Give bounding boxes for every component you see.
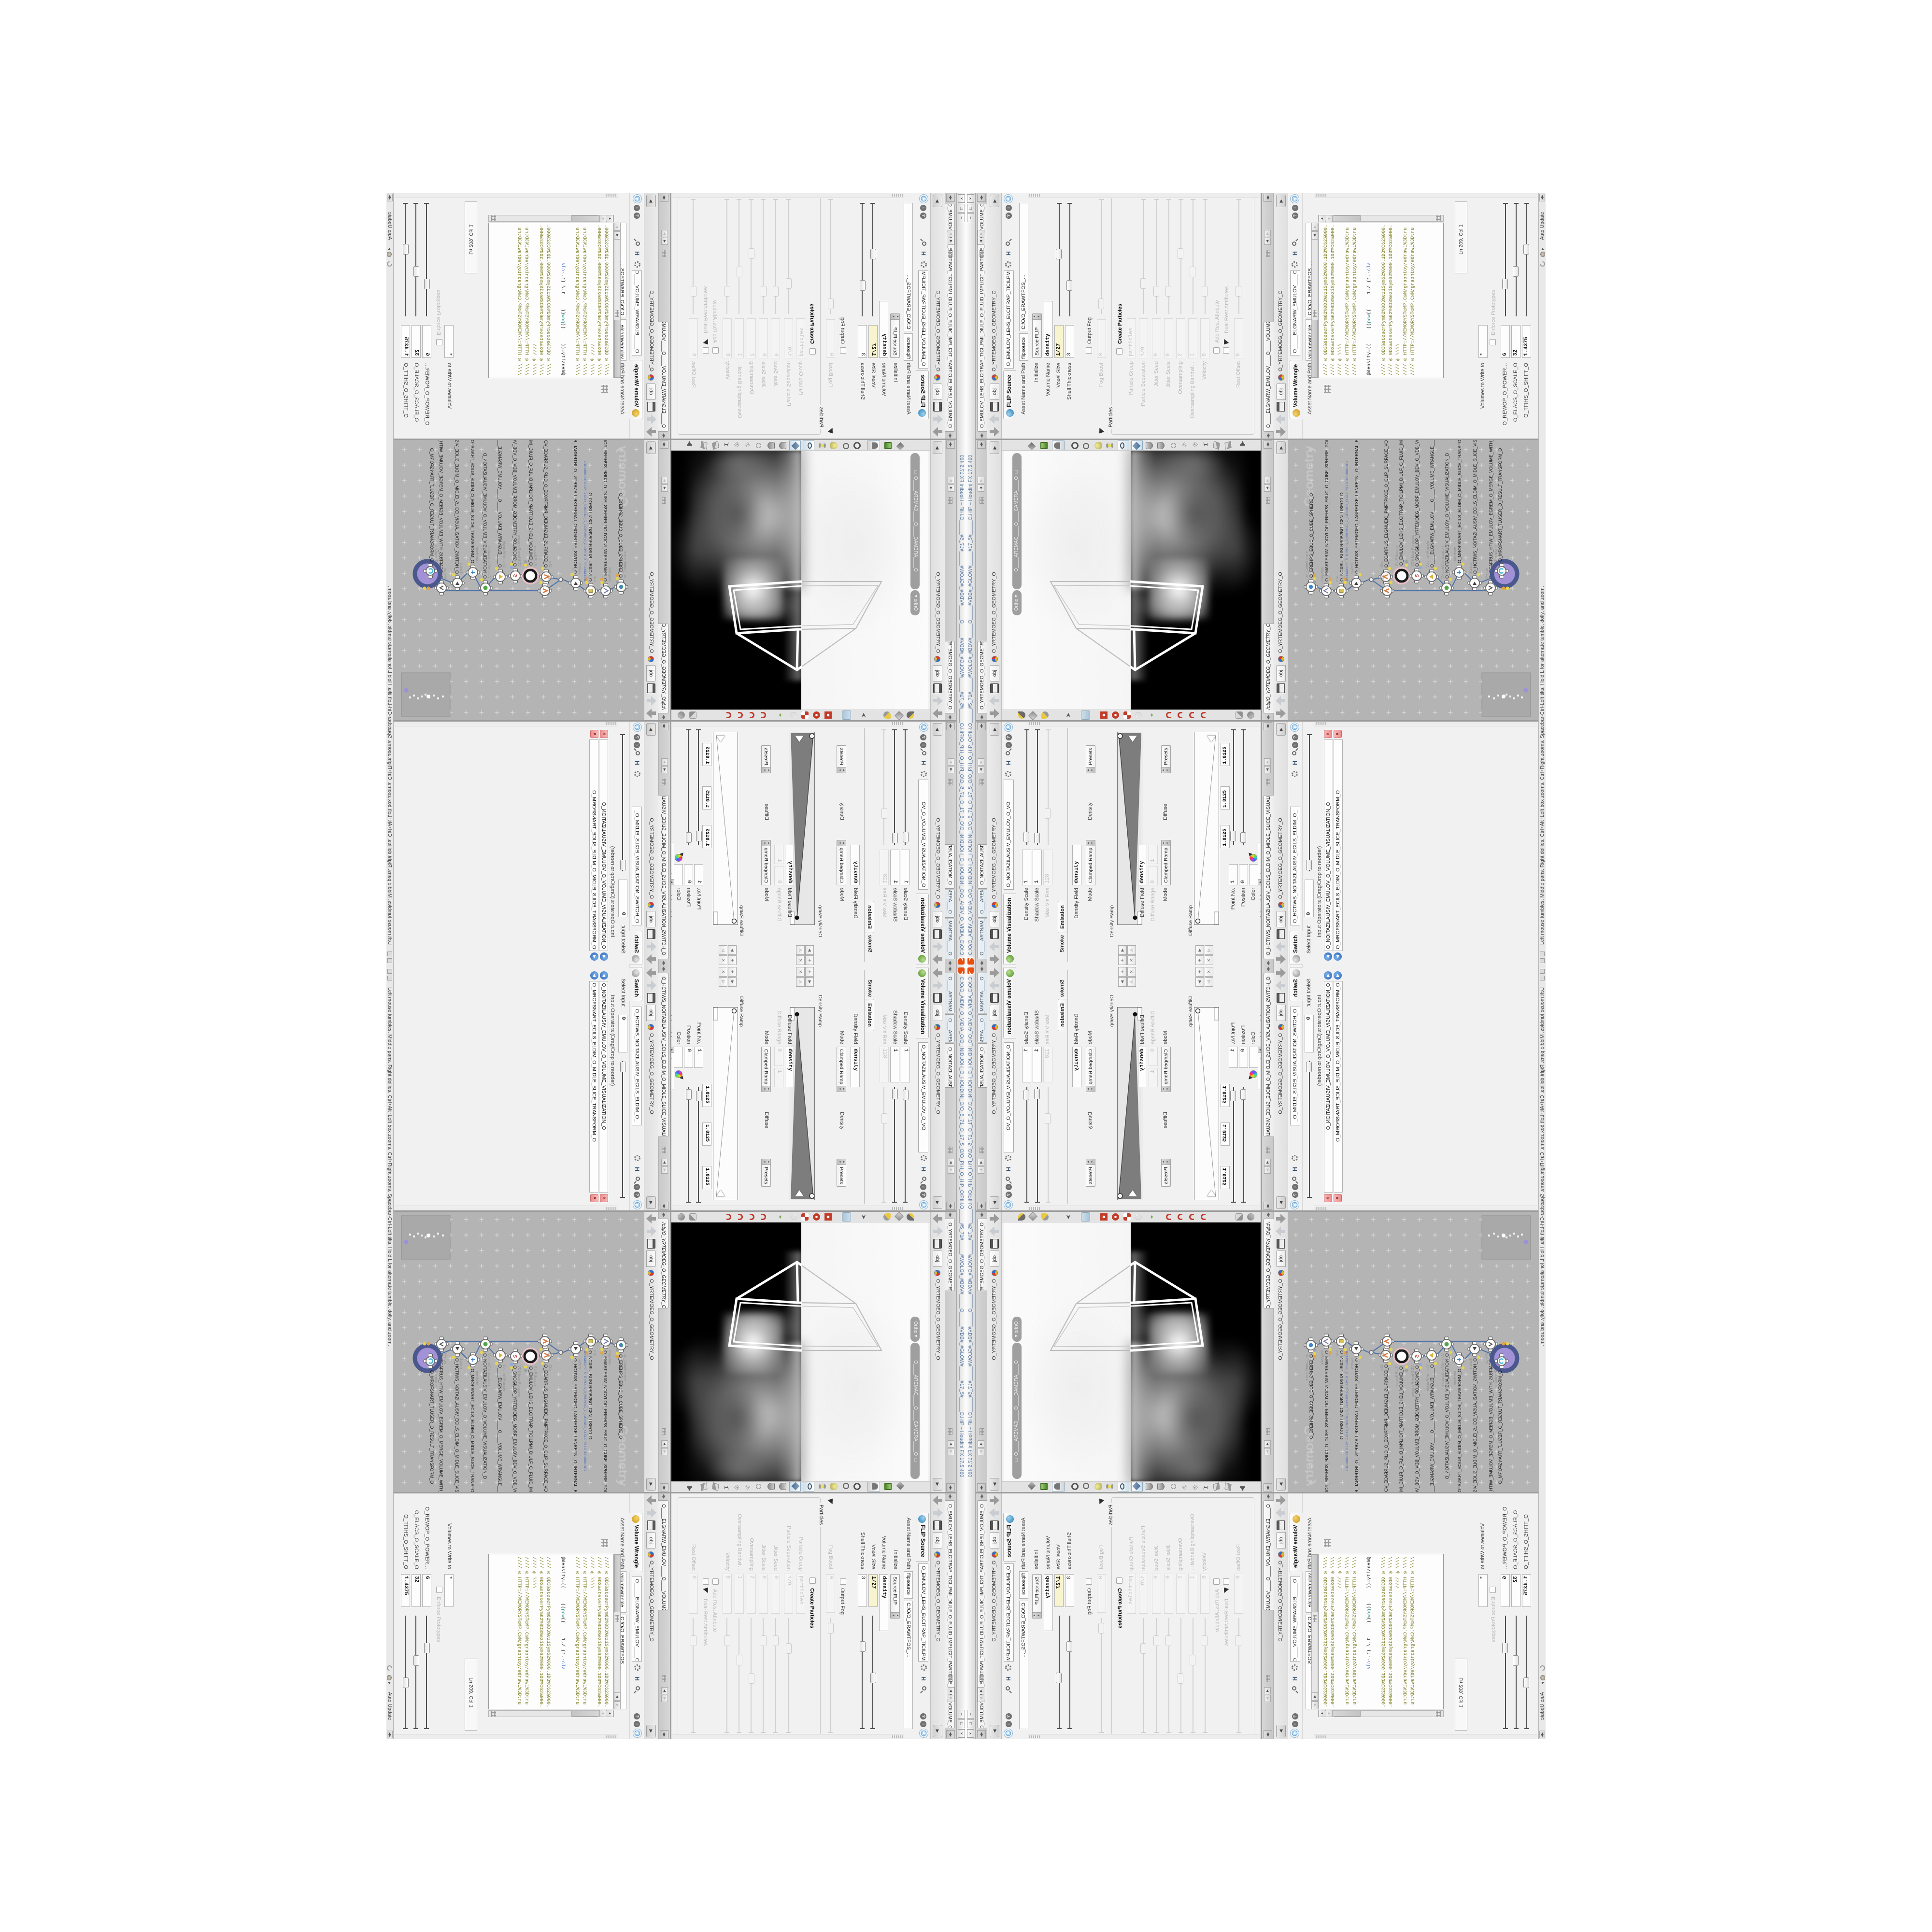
svg-text:O_MROFSNART_ECILS_ELDIM_O_MIDL: O_MROFSNART_ECILS_ELDIM_O_MIDLE_SLICE_TR… [1457, 1369, 1462, 1492]
svg-text:File: File [1335, 1350, 1339, 1356]
svg-text:O_EMARFERIW_NOGYLOP_EREHPS_EBU: O_EMARFERIW_NOGYLOP_EREHPS_EBUC_O_CUBE_S… [1324, 440, 1329, 582]
svg-text:O_HCTIWS_YRTEMOEG_LANRETXE_LAN: O_HCTIWS_YRTEMOEG_LANRETXE_LANRETNI_O_IN… [573, 440, 578, 574]
svg-text:Transform: Transform [1453, 547, 1457, 563]
svg-text:O_ECAFRUS_HTIW_EMULOV_EGREM_O_: O_ECAFRUS_HTIW_EMULOV_EGREM_O_MERGE_VOLU… [439, 440, 443, 579]
svg-text:O_SNOGILOP_YRTEMOEG_MORF_EMULO: O_SNOGILOP_YRTEMOEG_MORF_EMULOV_BDV_O_VD… [512, 1365, 517, 1492]
svg-text:O_NCXBU_BUSLRB0B2BO_G8N_USEO0_: O_NCXBU_BUSLRB0B2BO_G8N_USEO0_D [1339, 1350, 1344, 1440]
svg-text:JBO.M03.PETS.TRPOLS_0_55UM0G_O: JBO.M03.PETS.TRPOLS_0_55UM0G_O_GENUS3_O.… [1346, 1350, 1349, 1471]
svg-text:O_ECARRUS_ELGNUEIC_PMFTPKCE_O_: O_ECARRUS_ELGNUEIC_PMFTPKCE_O_CLIP_SURFA… [543, 440, 548, 568]
svg-text:O_SNOGILOP_YRTEMOEG_MORF_EMULO: O_SNOGILOP_YRTEMOEG_MORF_EMULOV_BDV_O_VD… [1415, 1365, 1420, 1492]
svg-text:VDB from Polygons: VDB from Polygons [1410, 535, 1415, 567]
svg-text:Volume Wrangle: Volume Wrangle [502, 1364, 507, 1391]
svg-text:O_ECAFRUS_HTIW_EMULOV_EGREM_O_: O_ECAFRUS_HTIW_EMULOV_EGREM_O_MERGE_VOLU… [439, 1353, 443, 1492]
svg-text:Switch: Switch [578, 563, 582, 574]
svg-text:Transform: Transform [434, 1370, 439, 1387]
svg-text:VolumeVisualization: VolumeVisualization [1440, 546, 1445, 579]
svg-text:O_MROFSNART_ECILS_ELDIM_O_MIDL: O_MROFSNART_ECILS_ELDIM_O_MIDLE_SLICE_TR… [470, 1369, 475, 1492]
svg-text:Transform: Transform [1453, 1369, 1457, 1385]
svg-text:Transform: Transform [475, 547, 479, 563]
svg-text:O_EREHPS_EBUC_O_CUBE_SPHERE_O: O_EREHPS_EBUC_O_CUBE_SPHERE_O [1309, 1354, 1314, 1439]
svg-text:O_MROFSNART_ECILS_ELDIM_O_MIDL: O_MROFSNART_ECILS_ELDIM_O_MIDLE_SLICE_TR… [1457, 440, 1462, 563]
svg-text:O_NOITAZILAUSIV_EMULOV_O_VOLUM: O_NOITAZILAUSIV_EMULOV_O_VOLUME_VISUALIZ… [1445, 1353, 1449, 1479]
svg-text:O_HCTIWS_NOITAZILAUSIV_ECILS_E: O_HCTIWS_NOITAZILAUSIV_ECILS_ELDIM_O_MID… [1473, 440, 1477, 574]
svg-text:Clip: Clip [547, 1350, 551, 1357]
svg-text:O____ELGNARW_EMULOV____O____VO: O____ELGNARW_EMULOV____O____VOLUME_WRANG… [1430, 440, 1435, 568]
svg-text:Volume Wrangle: Volume Wrangle [502, 541, 507, 568]
svg-text:VolumeVisualization: VolumeVisualization [487, 1353, 492, 1386]
svg-text:Clip: Clip [1381, 1350, 1385, 1357]
svg-text:Volume Wrangle: Volume Wrangle [1425, 1364, 1430, 1391]
svg-text:O_NOITAZILAUSIV_EMULOV_O_VOLUM: O_NOITAZILAUSIV_EMULOV_O_VOLUME_VISUALIZ… [1445, 453, 1449, 579]
svg-text:JBO.M03.PETS.TRPOLS_0_55UM0G_O: JBO.M03.PETS.TRPOLS_0_55UM0G_O_GENUS3_O.… [583, 461, 586, 582]
svg-text:O____ELGNARW_EMULOV____O____VO: O____ELGNARW_EMULOV____O____VOLUME_WRANG… [497, 1364, 502, 1492]
svg-text:Switch: Switch [1468, 563, 1473, 574]
svg-text:PolyWire: PolyWire [608, 1350, 612, 1365]
svg-text:Clip: Clip [547, 575, 551, 582]
svg-text:Clip: Clip [1381, 575, 1385, 582]
svg-text:O_NOITAZILAUSIV_EMULOV_O_VOLUM: O_NOITAZILAUSIV_EMULOV_O_VOLUME_VISUALIZ… [483, 453, 487, 579]
svg-text:Merge: Merge [1484, 568, 1489, 579]
svg-text:an_CubeSphere: an_CubeSphere [1305, 551, 1309, 578]
svg-text:Merge: Merge [443, 568, 448, 579]
svg-text:Switch: Switch [1468, 1358, 1473, 1369]
svg-text:O_ECARRUS_ELGNUEIC_PMFTPKCE_O_: O_ECARRUS_ELGNUEIC_PMFTPKCE_O_CLIP_SURFA… [543, 1364, 548, 1492]
svg-text:O_ECARRUS_ELGNUEIC_PMFTPKCE_O_: O_ECARRUS_ELGNUEIC_PMFTPKCE_O_CLIP_SURFA… [1384, 440, 1389, 568]
svg-text:O_HCTIWS_NOITAZILAUSIV_ECILS_E: O_HCTIWS_NOITAZILAUSIV_ECILS_ELDIM_O_MID… [455, 440, 459, 574]
svg-text:O_SNOGILOP_YRTEMOEG_MORF_EMULO: O_SNOGILOP_YRTEMOEG_MORF_EMULOV_BDV_O_VD… [512, 440, 517, 567]
svg-text:FLIP Source: FLIP Source [1394, 545, 1399, 566]
svg-text:Merge: Merge [1484, 1353, 1489, 1364]
svg-text:File: File [593, 576, 597, 582]
svg-text:O_HCTIWS_NOITAZILAUSIV_ECILS_E: O_HCTIWS_NOITAZILAUSIV_ECILS_ELDIM_O_MID… [1473, 1358, 1477, 1492]
svg-text:O_EMULOV_LEHS_ELCITRAP_TICILPM: O_EMULOV_LEHS_ELCITRAP_TICILPMI_DIULF_O_… [528, 1366, 533, 1492]
svg-text:O_NCXBU_BUSLRB0B2BO_G8N_USEO0_: O_NCXBU_BUSLRB0B2BO_G8N_USEO0_D [588, 492, 593, 582]
svg-text:Clip: Clip [1379, 1364, 1384, 1371]
svg-text:Transform: Transform [1493, 545, 1498, 562]
svg-text:JBO.M03.PETS.TRPOLS_0_55UM0G_O: JBO.M03.PETS.TRPOLS_0_55UM0G_O_GENUS3_O.… [583, 1350, 586, 1471]
svg-text:O_EMARFERIW_NOGYLOP_EREHPS_EBU: O_EMARFERIW_NOGYLOP_EREHPS_EBUC_O_CUBE_S… [603, 1350, 608, 1492]
svg-text:Switch: Switch [1350, 1358, 1354, 1369]
svg-text:O_MROFSNART_TLUSER_O_RESULT_TR: O_MROFSNART_TLUSER_O_RESULT_TRANSFORM_O [429, 448, 434, 562]
svg-text:File: File [1335, 576, 1339, 582]
svg-text:S: S [1415, 574, 1420, 577]
svg-text:FLIP Source: FLIP Source [533, 1366, 538, 1387]
svg-text:O_NCXBU_BUSLRB0B2BO_G8N_USEO0_: O_NCXBU_BUSLRB0B2BO_G8N_USEO0_D [588, 1350, 593, 1440]
svg-text:O_EMARFERIW_NOGYLOP_EREHPS_EBU: O_EMARFERIW_NOGYLOP_EREHPS_EBUC_O_CUBE_S… [603, 440, 608, 582]
svg-text:O_HCTIWS_NOITAZILAUSIV_ECILS_E: O_HCTIWS_NOITAZILAUSIV_ECILS_ELDIM_O_MID… [455, 1358, 459, 1492]
svg-text:O_NCXBU_BUSLRB0B2BO_G8N_USEO0_: O_NCXBU_BUSLRB0B2BO_G8N_USEO0_D [1339, 492, 1344, 582]
svg-text:Transform: Transform [434, 545, 439, 562]
svg-text:O_ECAFRUS_HTIW_EMULOV_EGREM_O_: O_ECAFRUS_HTIW_EMULOV_EGREM_O_MERGE_VOLU… [1489, 1353, 1493, 1492]
svg-text:O_EMULOV_LEHS_ELCITRAP_TICILPM: O_EMULOV_LEHS_ELCITRAP_TICILPMI_DIULF_O_… [1399, 440, 1404, 566]
svg-text:VolumeVisualization: VolumeVisualization [1440, 1353, 1445, 1386]
svg-text:O_EREHPS_EBUC_O_CUBE_SPHERE_O: O_EREHPS_EBUC_O_CUBE_SPHERE_O [1309, 493, 1314, 578]
svg-text:PolyWire: PolyWire [1320, 1350, 1324, 1365]
svg-text:S: S [512, 574, 517, 577]
svg-text:an_CubeSphere: an_CubeSphere [623, 1354, 627, 1381]
svg-text:Transform: Transform [1493, 1370, 1498, 1387]
svg-text:O_EREHPS_EBUC_O_CUBE_SPHERE_O: O_EREHPS_EBUC_O_CUBE_SPHERE_O [618, 493, 623, 578]
svg-text:VDB from Polygons: VDB from Polygons [1410, 1365, 1415, 1397]
svg-text:O____ELGNARW_EMULOV____O____VO: O____ELGNARW_EMULOV____O____VOLUME_WRANG… [1430, 1364, 1435, 1492]
svg-text:File: File [593, 1350, 597, 1356]
svg-text:Clip: Clip [548, 561, 553, 568]
svg-text:Switch: Switch [1350, 563, 1354, 574]
svg-text:O_MROFSNART_ECILS_ELDIM_O_MIDL: O_MROFSNART_ECILS_ELDIM_O_MIDLE_SLICE_TR… [470, 440, 475, 563]
svg-text:Clip: Clip [548, 1364, 553, 1371]
svg-text:FLIP Source: FLIP Source [1394, 1366, 1399, 1387]
svg-text:VDB from Polygons: VDB from Polygons [517, 535, 522, 567]
svg-text:an_CubeSphere: an_CubeSphere [1305, 1354, 1309, 1381]
svg-text:Switch: Switch [459, 1358, 464, 1369]
svg-text:O_EMULOV_LEHS_ELCITRAP_TICILPM: O_EMULOV_LEHS_ELCITRAP_TICILPMI_DIULF_O_… [528, 440, 533, 566]
svg-text:O_ECAFRUS_HTIW_EMULOV_EGREM_O_: O_ECAFRUS_HTIW_EMULOV_EGREM_O_MERGE_VOLU… [1489, 440, 1493, 579]
svg-text:an_CubeSphere: an_CubeSphere [623, 551, 627, 578]
svg-text:O_MROFSNART_TLUSER_O_RESULT_TR: O_MROFSNART_TLUSER_O_RESULT_TRANSFORM_O [1498, 1370, 1503, 1484]
svg-text:O_HCTIWS_YRTEMOEG_LANRETXE_LAN: O_HCTIWS_YRTEMOEG_LANRETXE_LANRETNI_O_IN… [1354, 1358, 1359, 1492]
svg-text:VolumeVisualization: VolumeVisualization [487, 546, 492, 579]
svg-text:O_EMULOV_LEHS_ELCITRAP_TICILPM: O_EMULOV_LEHS_ELCITRAP_TICILPMI_DIULF_O_… [1399, 1366, 1404, 1492]
svg-text:O_SNOGILOP_YRTEMOEG_MORF_EMULO: O_SNOGILOP_YRTEMOEG_MORF_EMULOV_BDV_O_VD… [1415, 440, 1420, 567]
svg-text:O_NOITAZILAUSIV_EMULOV_O_VOLUM: O_NOITAZILAUSIV_EMULOV_O_VOLUME_VISUALIZ… [483, 1353, 487, 1479]
svg-text:S: S [1415, 1355, 1420, 1358]
svg-text:Switch: Switch [459, 563, 464, 574]
svg-text:JBO.M03.PETS.TRPOLS_0_55UM0G_O: JBO.M03.PETS.TRPOLS_0_55UM0G_O_GENUS3_O.… [1346, 461, 1349, 582]
svg-text:PolyWire: PolyWire [1320, 567, 1324, 582]
svg-text:Transform: Transform [475, 1369, 479, 1385]
svg-text:VDB from Polygons: VDB from Polygons [517, 1365, 522, 1397]
svg-text:O_EMARFERIW_NOGYLOP_EREHPS_EBU: O_EMARFERIW_NOGYLOP_EREHPS_EBUC_O_CUBE_S… [1324, 1350, 1329, 1492]
svg-text:O____ELGNARW_EMULOV____O____VO: O____ELGNARW_EMULOV____O____VOLUME_WRANG… [497, 440, 502, 568]
svg-text:O_MROFSNART_TLUSER_O_RESULT_TR: O_MROFSNART_TLUSER_O_RESULT_TRANSFORM_O [1498, 448, 1503, 562]
svg-text:Switch: Switch [578, 1358, 582, 1369]
svg-text:O_HCTIWS_YRTEMOEG_LANRETXE_LAN: O_HCTIWS_YRTEMOEG_LANRETXE_LANRETNI_O_IN… [1354, 440, 1359, 574]
svg-text:O_ECARRUS_ELGNUEIC_PMFTPKCE_O_: O_ECARRUS_ELGNUEIC_PMFTPKCE_O_CLIP_SURFA… [1384, 1364, 1389, 1492]
svg-text:Merge: Merge [443, 1353, 448, 1364]
svg-text:Clip: Clip [1379, 561, 1384, 568]
svg-text:S: S [512, 1355, 517, 1358]
svg-text:O_MROFSNART_TLUSER_O_RESULT_TR: O_MROFSNART_TLUSER_O_RESULT_TRANSFORM_O [429, 1370, 434, 1484]
svg-text:Volume Wrangle: Volume Wrangle [1425, 541, 1430, 568]
svg-text:O_HCTIWS_YRTEMOEG_LANRETXE_LAN: O_HCTIWS_YRTEMOEG_LANRETXE_LANRETNI_O_IN… [573, 1358, 578, 1492]
svg-text:PolyWire: PolyWire [608, 567, 612, 582]
svg-text:O_EREHPS_EBUC_O_CUBE_SPHERE_O: O_EREHPS_EBUC_O_CUBE_SPHERE_O [618, 1354, 623, 1439]
svg-text:FLIP Source: FLIP Source [533, 545, 538, 566]
